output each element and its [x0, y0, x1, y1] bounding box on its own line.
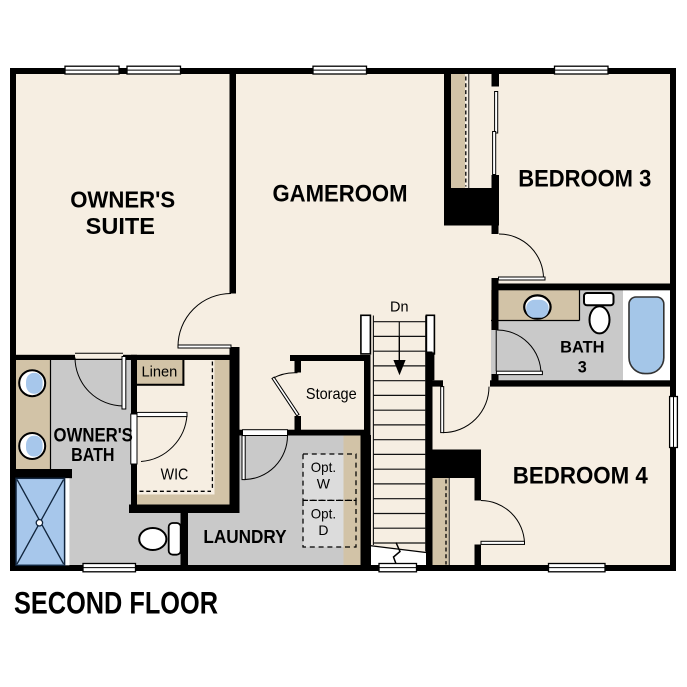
svg-text:LAUNDRY: LAUNDRY: [203, 527, 286, 547]
svg-text:3: 3: [578, 359, 587, 377]
svg-text:Opt.: Opt.: [311, 505, 336, 521]
svg-text:D: D: [318, 522, 328, 538]
svg-text:BATH: BATH: [560, 339, 604, 357]
svg-text:Linen: Linen: [141, 363, 177, 380]
svg-text:Opt.: Opt.: [311, 459, 336, 475]
svg-text:OWNER'S: OWNER'S: [70, 187, 175, 213]
svg-text:GAMEROOM: GAMEROOM: [273, 181, 408, 208]
svg-text:BATH: BATH: [71, 445, 114, 465]
svg-text:OWNER'S: OWNER'S: [54, 426, 133, 447]
svg-text:SECOND FLOOR: SECOND FLOOR: [14, 584, 218, 620]
svg-text:BEDROOM 3: BEDROOM 3: [518, 165, 651, 192]
svg-text:Storage: Storage: [306, 386, 357, 403]
svg-text:Dn: Dn: [390, 300, 409, 316]
svg-text:BEDROOM 4: BEDROOM 4: [513, 463, 648, 490]
svg-text:W: W: [317, 476, 331, 492]
svg-text:WIC: WIC: [161, 467, 189, 484]
svg-text:SUITE: SUITE: [86, 213, 155, 239]
